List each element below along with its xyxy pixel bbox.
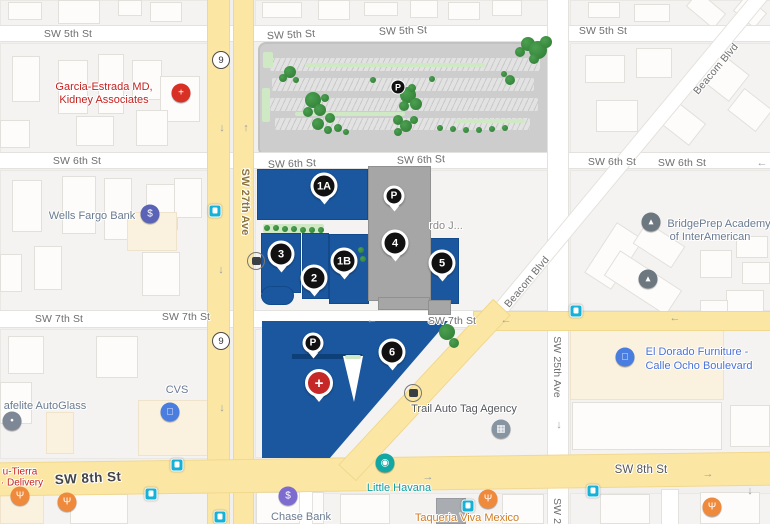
tree-icon <box>410 116 418 124</box>
tree-icon <box>394 128 402 136</box>
tree-icon <box>282 226 288 232</box>
street-label: SW 7th St <box>35 313 83 325</box>
building <box>8 336 44 374</box>
transit-station-icon[interactable] <box>214 511 227 524</box>
green-strip <box>455 119 525 123</box>
building <box>46 412 74 454</box>
building <box>12 56 40 102</box>
building <box>318 0 350 20</box>
green-strip <box>305 63 485 67</box>
oneway-arrow-icon: ← <box>670 312 681 324</box>
building <box>596 100 638 132</box>
building <box>76 116 114 146</box>
oneway-arrow-icon: ← <box>367 314 378 326</box>
tree-icon <box>450 126 456 132</box>
bus-glyph <box>409 389 418 397</box>
poi-label: Kidney Associates <box>59 94 148 106</box>
tree-icon <box>358 247 364 253</box>
poi-label: Calle Ocho Boulevard <box>645 360 752 372</box>
map-canvas[interactable]: SW 5th StSW 5th StSW 5th StSW 5th StSW 6… <box>0 0 770 524</box>
building <box>700 250 732 278</box>
restaurant-pin[interactable]: Ψ <box>703 498 722 517</box>
transit-station-icon[interactable] <box>209 205 222 218</box>
street-label: SW 25 <box>551 498 563 524</box>
oneway-arrow-icon: ↓ <box>219 122 225 134</box>
building <box>585 55 625 83</box>
poi-label: u-Tierra <box>3 467 38 478</box>
parking-marker[interactable]: P <box>303 333 324 354</box>
street-label: SW 5th St <box>379 24 428 38</box>
building <box>12 180 42 232</box>
bank-dollar-pin[interactable]: $ <box>279 487 298 506</box>
tree-icon <box>489 126 495 132</box>
tree-icon <box>312 118 324 130</box>
building <box>730 405 770 447</box>
school-pin[interactable]: ▴ <box>639 270 658 289</box>
tree-icon <box>324 126 332 134</box>
parking-marker[interactable]: P <box>391 80 406 95</box>
oneway-arrow-icon: ↓ <box>218 264 224 276</box>
tree-icon <box>410 98 422 110</box>
bank-pin[interactable]: ▦ <box>492 420 511 439</box>
tree-icon <box>279 74 287 82</box>
campus-building-gray <box>378 297 430 310</box>
building <box>588 2 620 18</box>
tree-icon <box>318 227 324 233</box>
tree-icon <box>505 75 515 85</box>
green-strip <box>263 52 273 68</box>
tree-icon <box>273 225 279 231</box>
poi-label: Wells Fargo Bank <box>49 210 136 222</box>
campus-building-gray <box>428 300 451 315</box>
building-marker-2[interactable]: 2 <box>301 265 328 292</box>
building <box>174 178 202 218</box>
school-pin[interactable]: ▴ <box>642 213 661 232</box>
building-marker-4[interactable]: 4 <box>382 230 409 257</box>
tree-icon <box>502 125 508 131</box>
tree-icon <box>325 113 335 123</box>
street-label: SW 6th St <box>658 157 706 169</box>
poi-label: BridgePrep Academy <box>667 218 770 230</box>
building <box>600 494 650 524</box>
building <box>262 2 302 18</box>
building <box>0 254 22 292</box>
poi-label: rdo J... <box>429 220 463 232</box>
road-white <box>662 490 678 524</box>
building <box>136 110 168 146</box>
street-label: SW 8th St <box>615 464 668 476</box>
oneway-arrow-icon: ↓ <box>556 419 562 431</box>
building <box>636 48 672 78</box>
street-label: SW 5th St <box>44 28 92 40</box>
street-label: SW 27th Ave <box>239 169 251 236</box>
building <box>448 2 480 20</box>
tree-icon <box>429 76 435 82</box>
poi-label: Trail Auto Tag Agency <box>411 403 517 415</box>
building <box>340 494 390 524</box>
generic-pin[interactable]: • <box>3 412 22 431</box>
tree-icon <box>303 107 313 117</box>
building <box>142 252 180 296</box>
tree-icon <box>360 256 366 262</box>
tree-icon <box>476 127 482 133</box>
building <box>70 494 128 524</box>
transit-station-icon[interactable] <box>145 488 158 501</box>
building <box>742 262 770 284</box>
building-marker-3[interactable]: 3 <box>268 241 295 268</box>
tree-icon <box>463 127 469 133</box>
restaurant-pin[interactable]: Ψ <box>58 493 77 512</box>
health-cross-marker[interactable]: + <box>305 369 333 397</box>
bus-stop-icon[interactable] <box>248 253 264 269</box>
shopping-pin[interactable]: □ <box>161 403 180 422</box>
building <box>150 2 182 22</box>
transit-station-icon[interactable] <box>462 500 475 513</box>
restaurant-pin[interactable]: Ψ <box>11 487 30 506</box>
building <box>58 0 100 24</box>
oneway-arrow-icon: ↓ <box>219 402 225 414</box>
street-label: SW 7th St <box>162 311 210 323</box>
building <box>492 0 522 16</box>
tree-icon <box>300 227 306 233</box>
tree-icon <box>314 104 326 116</box>
street-label: SW 5th St <box>267 28 316 43</box>
medical-pin[interactable]: + <box>172 84 191 103</box>
tree-icon <box>501 71 507 77</box>
building-marker-5[interactable]: 5 <box>429 250 456 277</box>
bank-dollar-pin[interactable]: $ <box>141 205 160 224</box>
campus-building-blue <box>261 286 294 305</box>
tree-icon <box>343 129 349 135</box>
oneway-arrow-icon: ← <box>501 314 512 326</box>
oneway-arrow-icon: ↑ <box>243 122 249 134</box>
poi-label: El Dorado Furniture - <box>646 346 749 358</box>
poi-label: CVS <box>166 384 189 396</box>
tree-icon <box>370 77 376 83</box>
street-label: SW 6th St <box>588 156 636 168</box>
poi-label: Taqueria Viva Mexico <box>415 512 519 524</box>
street-label: SW 25th Ave <box>551 336 563 398</box>
tree-icon <box>321 94 329 102</box>
poi-label: Chase Bank <box>271 511 331 523</box>
building <box>410 0 438 18</box>
building <box>96 336 138 378</box>
tree-icon <box>529 54 539 64</box>
tree-icon <box>399 101 409 111</box>
tree-icon <box>309 227 315 233</box>
oneway-arrow-icon: → <box>423 471 434 483</box>
tree-icon <box>334 124 342 132</box>
building <box>572 402 722 450</box>
green-strip <box>262 88 270 122</box>
oneway-arrow-icon: ← <box>757 157 768 169</box>
green-strip <box>345 355 361 359</box>
route-shield: 9 <box>212 332 230 350</box>
camera-pin[interactable]: ◉ <box>376 454 395 473</box>
transit-station-icon[interactable] <box>570 305 583 318</box>
poi-label: of InterAmerican <box>670 231 751 243</box>
tree-icon <box>515 47 525 57</box>
poi-label: Garcia-Estrada MD, <box>55 81 152 93</box>
building <box>62 176 96 234</box>
building <box>34 246 62 290</box>
tree-icon <box>449 338 459 348</box>
tree-icon <box>437 125 443 131</box>
building <box>0 120 30 148</box>
street-label: SW 6th St <box>397 153 446 167</box>
poi-label: afelite AutoGlass <box>4 400 87 412</box>
bus-glyph <box>252 257 261 265</box>
route-shield: 9 <box>212 51 230 69</box>
street-label: SW 7th St <box>428 315 476 327</box>
street-label: SW 5th St <box>579 25 627 37</box>
tree-icon <box>293 77 299 83</box>
tree-icon <box>540 36 552 48</box>
poi-label: Little Havana <box>367 482 431 494</box>
shopping-pin[interactable]: □ <box>616 348 635 367</box>
tree-icon <box>264 225 270 231</box>
road-yellow <box>208 0 229 524</box>
oneway-arrow-icon: → <box>703 468 714 480</box>
transit-station-icon[interactable] <box>171 459 184 472</box>
street-label: SW 6th St <box>268 157 317 171</box>
building-marker-1b[interactable]: 1B <box>331 248 358 275</box>
building-marker-1a[interactable]: 1A <box>311 173 338 200</box>
tree-icon <box>408 84 416 92</box>
building <box>634 4 670 22</box>
building <box>118 0 142 16</box>
transit-station-icon[interactable] <box>587 485 600 498</box>
bus-stop-icon[interactable] <box>405 385 421 401</box>
building <box>364 2 398 16</box>
road-yellow <box>474 312 770 330</box>
tree-icon <box>291 226 297 232</box>
building-marker-6[interactable]: 6 <box>379 339 406 366</box>
street-label: SW 6th St <box>53 155 101 167</box>
restaurant-pin[interactable]: Ψ <box>479 490 498 509</box>
oneway-arrow-icon: ↓ <box>747 485 753 497</box>
parking-marker[interactable]: P <box>384 186 405 207</box>
building <box>8 2 42 20</box>
